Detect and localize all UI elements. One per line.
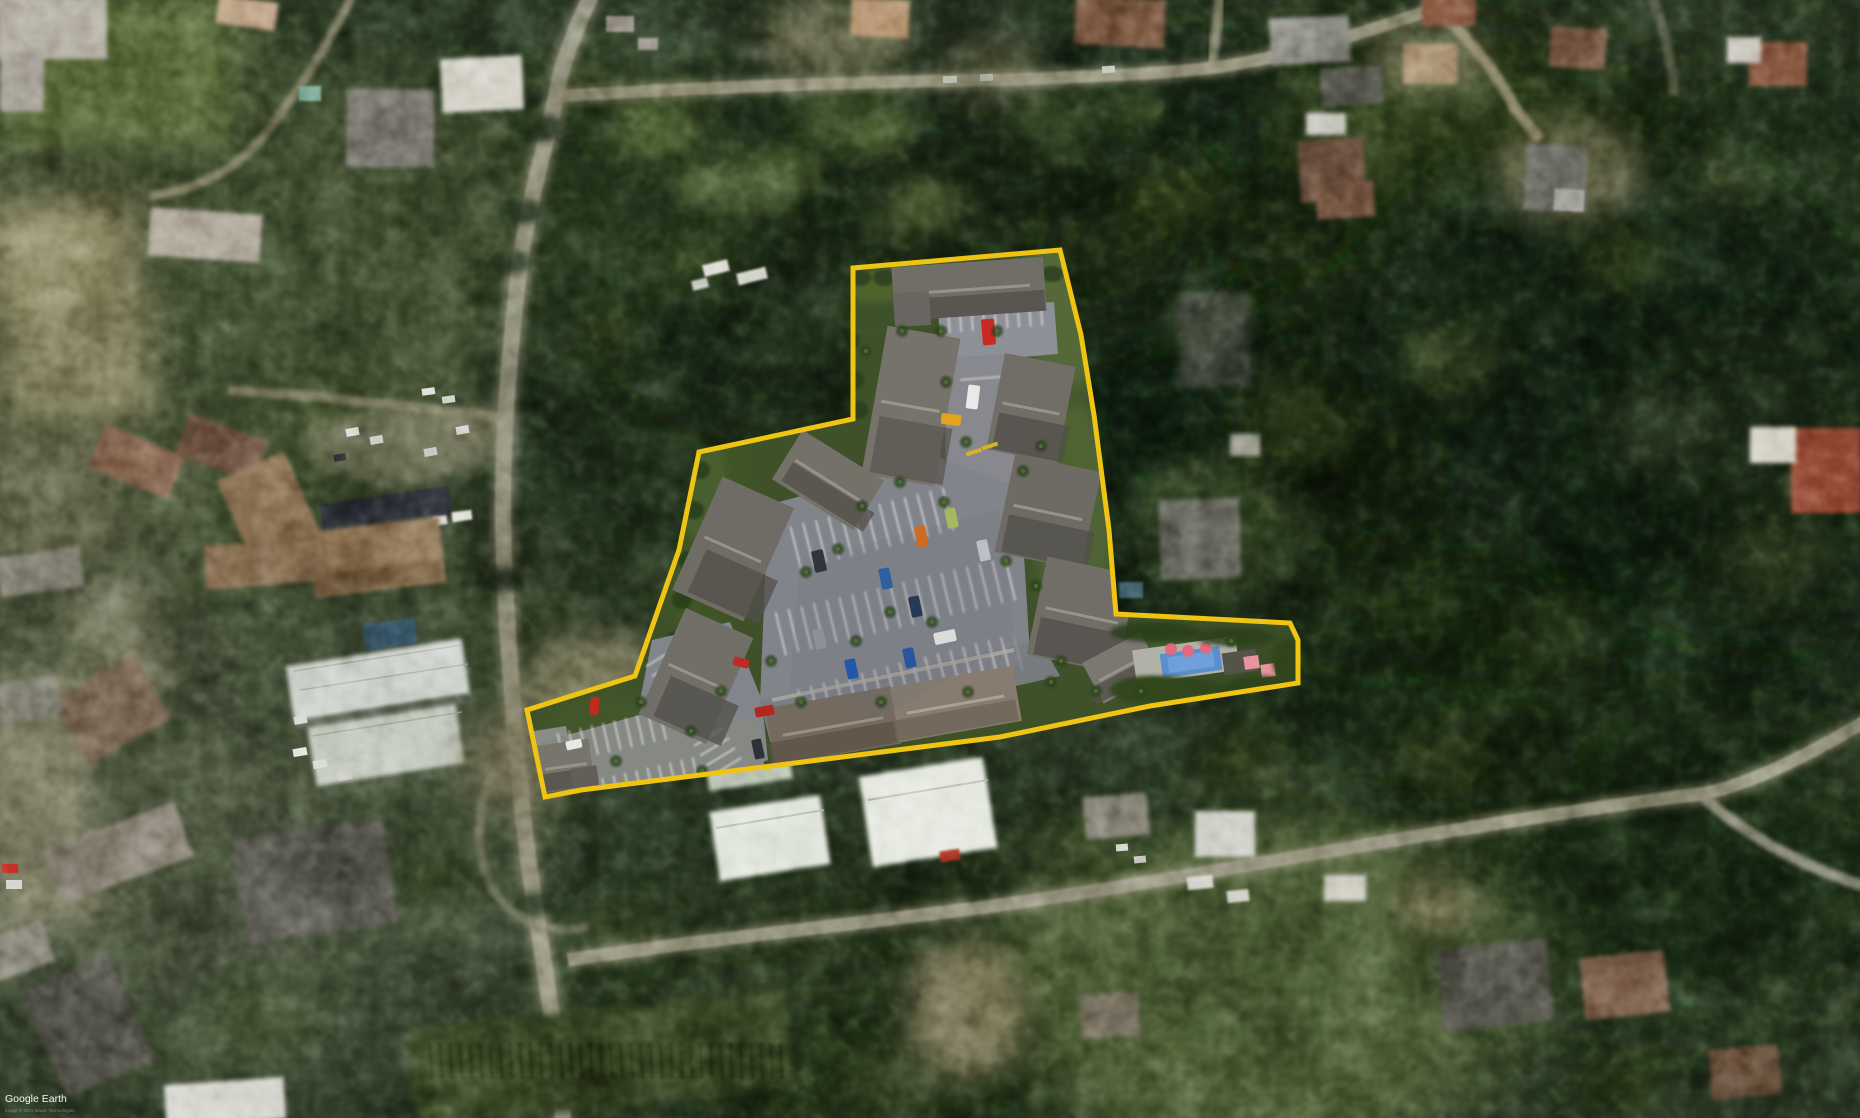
svg-text:Image © 2021 Maxar Technologie: Image © 2021 Maxar Technologies: [5, 1107, 75, 1113]
svg-text:Google Earth: Google Earth: [5, 1093, 67, 1105]
